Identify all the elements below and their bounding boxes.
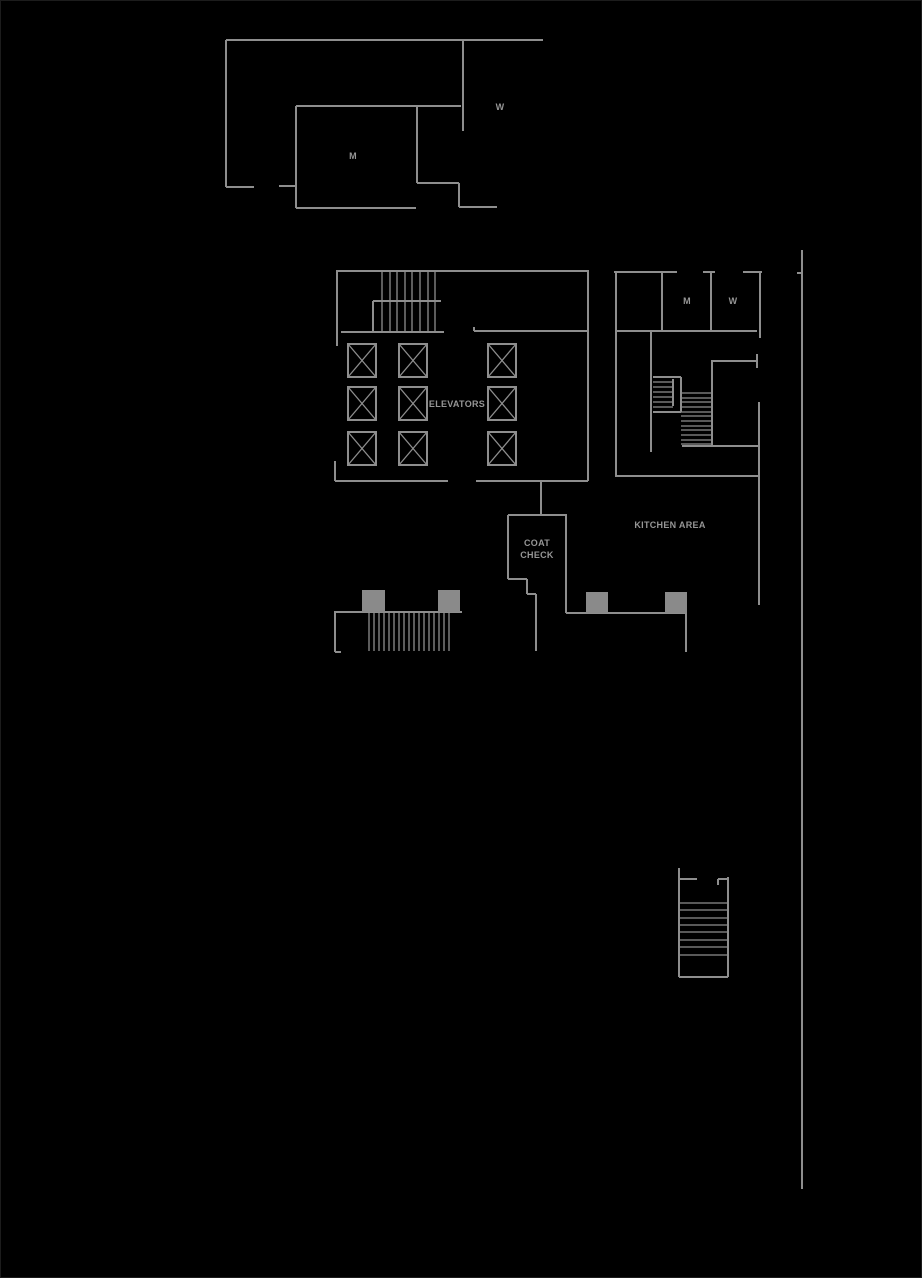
floor-plan-canvas: MWELEVATORSMWKITCHEN AREACOATCHECK — [0, 0, 922, 1278]
floor-label-elevators: ELEVATORS — [429, 399, 485, 409]
floor-label-upper-womens-room: W — [496, 102, 505, 112]
floor-label-right-womens-room: W — [729, 296, 738, 306]
floor-label-coat-check-line1: COAT — [524, 538, 550, 548]
landing-block — [438, 590, 460, 612]
landing-block — [586, 592, 608, 613]
floor-label-right-mens-room: M — [683, 296, 691, 306]
landing-block — [362, 590, 385, 612]
floor-plan-svg: MWELEVATORSMWKITCHEN AREACOATCHECK — [0, 0, 922, 1278]
floor-label-upper-mens-room: M — [349, 151, 357, 161]
floor-label-kitchen-area: KITCHEN AREA — [634, 520, 705, 530]
landing-block — [665, 592, 687, 613]
floor-label-coat-check-line2: CHECK — [520, 550, 554, 560]
